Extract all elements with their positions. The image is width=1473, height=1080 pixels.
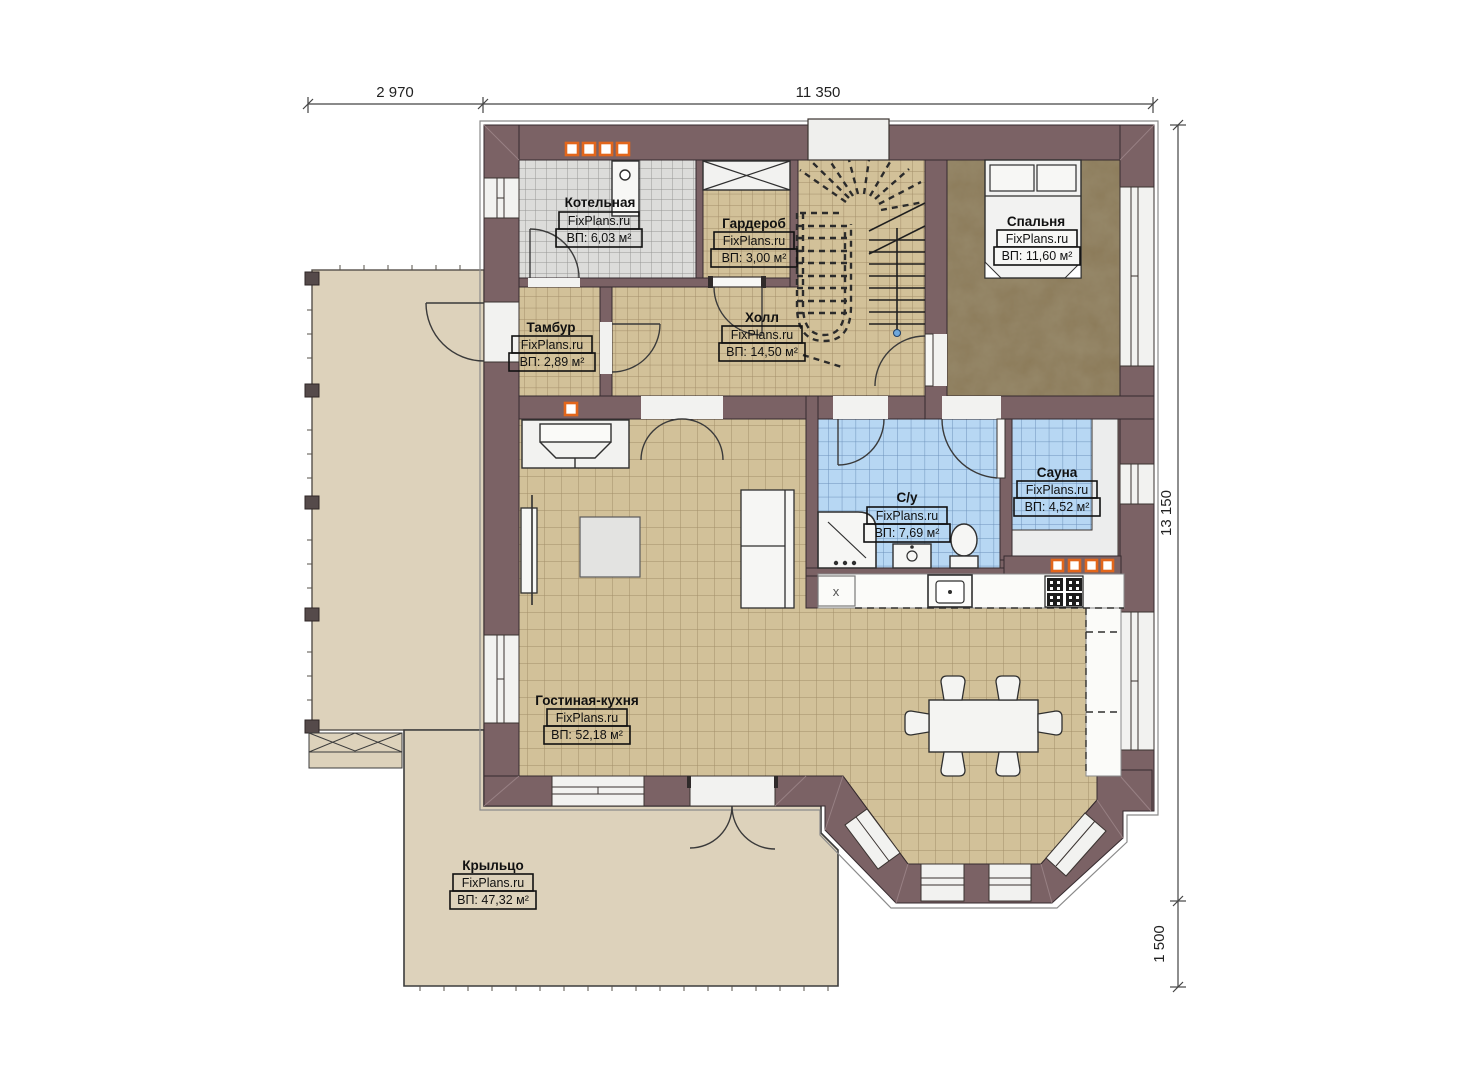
svg-text:ВП: 52,18 м²: ВП: 52,18 м² bbox=[551, 728, 623, 742]
svg-text:ВП: 3,00 м²: ВП: 3,00 м² bbox=[722, 251, 787, 265]
svg-text:FixPlans.ru: FixPlans.ru bbox=[1006, 232, 1069, 246]
svg-text:FixPlans.ru: FixPlans.ru bbox=[556, 711, 619, 725]
svg-text:ВП: 2,89 м²: ВП: 2,89 м² bbox=[520, 355, 585, 369]
svg-text:FixPlans.ru: FixPlans.ru bbox=[462, 876, 525, 890]
svg-text:Тамбур: Тамбур bbox=[527, 320, 576, 335]
svg-text:Холл: Холл bbox=[745, 310, 779, 325]
svg-text:FixPlans.ru: FixPlans.ru bbox=[521, 338, 584, 352]
svg-text:ВП: 6,03 м²: ВП: 6,03 м² bbox=[567, 231, 632, 245]
svg-text:Спальня: Спальня bbox=[1007, 214, 1065, 229]
svg-text:ВП: 11,60 м²: ВП: 11,60 м² bbox=[1002, 249, 1073, 263]
svg-text:ВП: 14,50 м²: ВП: 14,50 м² bbox=[726, 345, 798, 359]
svg-text:Крыльцо: Крыльцо bbox=[462, 858, 523, 873]
svg-text:FixPlans.ru: FixPlans.ru bbox=[723, 234, 786, 248]
svg-text:ВП: 7,69 м²: ВП: 7,69 м² bbox=[875, 526, 940, 540]
svg-text:Сауна: Сауна bbox=[1037, 465, 1078, 480]
svg-text:Гостиная-кухня: Гостиная-кухня bbox=[535, 693, 638, 708]
svg-text:FixPlans.ru: FixPlans.ru bbox=[1026, 483, 1089, 497]
svg-text:FixPlans.ru: FixPlans.ru bbox=[568, 214, 631, 228]
svg-text:13 150: 13 150 bbox=[1158, 490, 1175, 536]
svg-text:1 500: 1 500 bbox=[1151, 925, 1168, 963]
svg-text:ВП: 4,52 м²: ВП: 4,52 м² bbox=[1025, 500, 1090, 514]
svg-text:FixPlans.ru: FixPlans.ru bbox=[876, 509, 939, 523]
svg-text:ВП: 47,32 м²: ВП: 47,32 м² bbox=[457, 893, 529, 907]
svg-text:11 350: 11 350 bbox=[796, 84, 841, 101]
svg-text:FixPlans.ru: FixPlans.ru bbox=[731, 328, 794, 342]
svg-text:Гардероб: Гардероб bbox=[722, 216, 786, 231]
svg-text:С/у: С/у bbox=[896, 490, 918, 505]
svg-text:x: x bbox=[833, 584, 840, 599]
svg-text:Котельная: Котельная bbox=[565, 195, 636, 210]
svg-text:2 970: 2 970 bbox=[376, 84, 414, 101]
